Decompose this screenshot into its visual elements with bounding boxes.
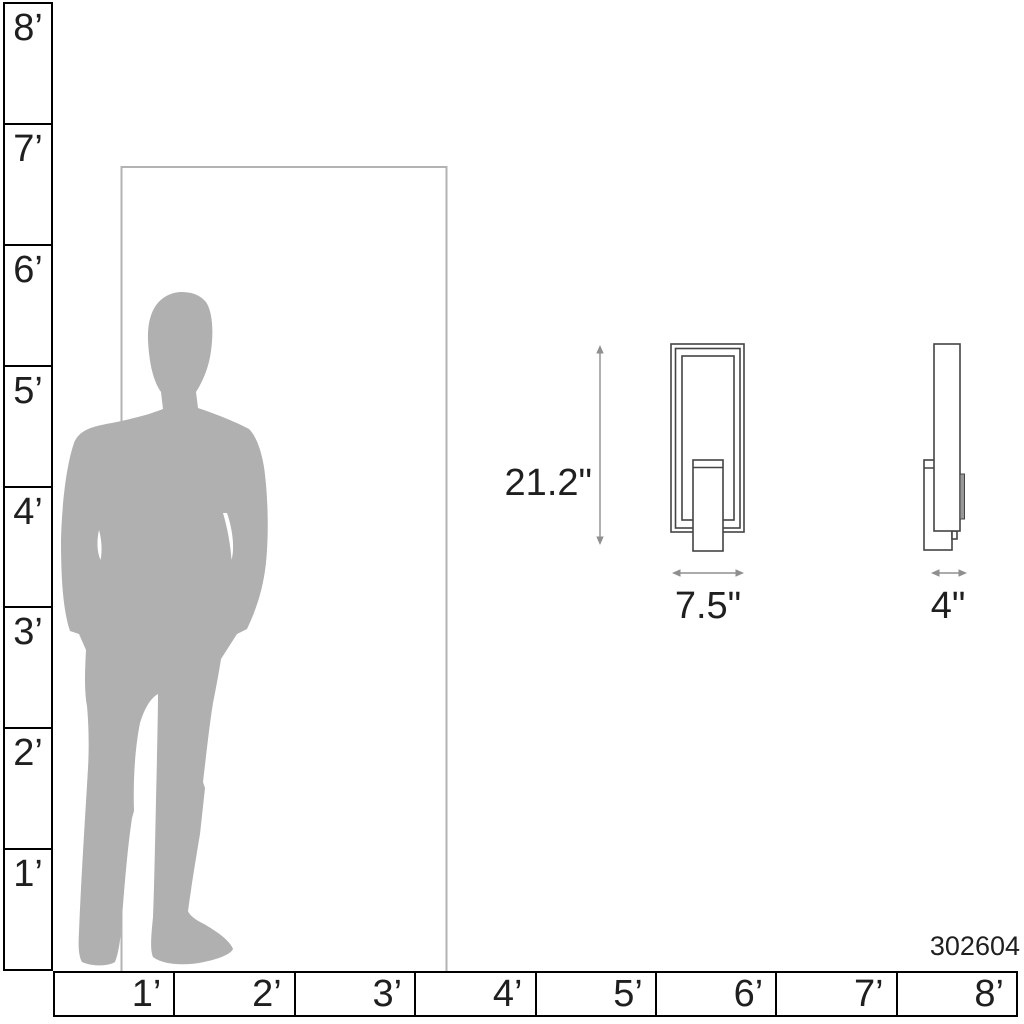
ruler-segment: 3’ [3,606,53,729]
width-dimension-label: 7.5" [628,584,788,628]
vertical-ruler: 8’ 7’ 6’ 5’ 4’ 3’ 2’ 1’ [3,2,53,971]
ruler-segment-label: 5’ [5,367,51,412]
ruler-segment: 7’ [3,123,53,246]
side-bottom-notch [952,531,957,539]
ruler-segment-label: 6’ [5,246,51,291]
side-panel [934,344,960,531]
height-dimension-arrow [596,345,603,545]
ruler-segment-label: 3’ [5,608,51,653]
horizontal-ruler: 1’ 2’ 3’ 4’ 5’ 6’ 7’ 8’ [53,971,1018,1017]
side-wall-strip [960,474,965,519]
diagram-drawing [0,0,1024,1024]
ruler-segment: 8’ [3,2,53,125]
ruler-segment-label: 1’ [5,850,51,895]
person-silhouette [61,292,268,965]
ruler-segment: 1’ [3,848,53,971]
ruler-segment: 4’ [3,486,53,609]
ruler-segment: 8’ [896,971,1018,1017]
height-dimension-label: 21.2" [420,461,592,505]
ruler-segment: 3’ [294,971,416,1017]
ruler-segment: 7’ [775,971,897,1017]
dimension-arrows [596,345,967,577]
ruler-segment: 6’ [655,971,777,1017]
ruler-segment: 4’ [414,971,536,1017]
ruler-segment: 5’ [535,971,657,1017]
front-lamp-body [693,460,723,551]
ruler-segment: 2’ [3,727,53,850]
ruler-segment: 6’ [3,244,53,367]
dimension-diagram: 8’ 7’ 6’ 5’ 4’ 3’ 2’ 1’ 1’ 2’ 3’ 4’ 5’ 6… [0,0,1024,1024]
ruler-segment-label: 4’ [5,488,51,533]
sconce-side-view [924,344,965,550]
ruler-segment: 2’ [173,971,295,1017]
depth-dimension-label: 4" [868,584,1024,628]
ruler-segment-label: 7’ [5,125,51,170]
ruler-segment: 1’ [53,971,175,1017]
ruler-segment-label: 8’ [5,4,51,49]
depth-dimension-arrow [931,569,967,576]
sconce-front-view [671,344,744,551]
width-dimension-arrow [672,569,744,576]
ruler-segment: 5’ [3,365,53,488]
product-code: 302604 [820,929,1020,963]
ruler-segment-label: 2’ [5,729,51,774]
